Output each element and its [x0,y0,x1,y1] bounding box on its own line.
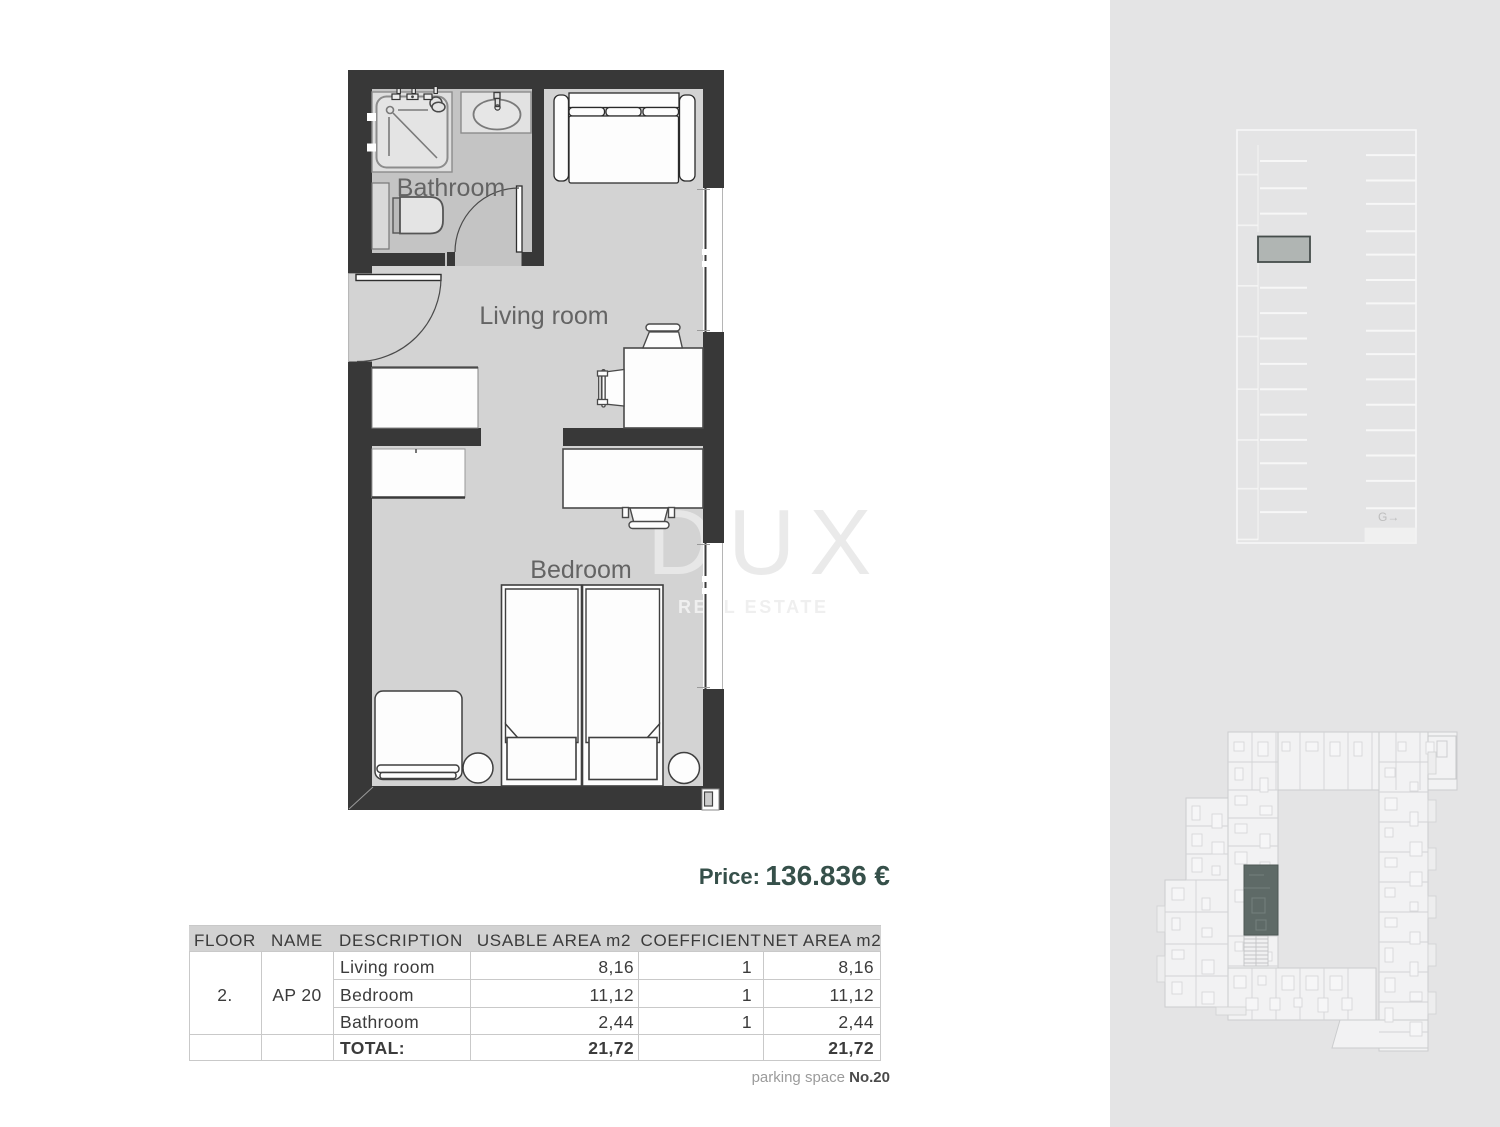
svg-text:REAL ESTATE: REAL ESTATE [678,597,829,617]
svg-text:8,16: 8,16 [838,957,874,977]
svg-text:G→: G→ [1378,510,1399,524]
svg-text:8,16: 8,16 [598,957,634,977]
svg-text:NAME: NAME [271,931,323,950]
svg-text:2,44: 2,44 [838,1012,874,1032]
svg-text:21,72: 21,72 [828,1038,874,1058]
svg-text:USABLE AREA m2: USABLE AREA m2 [477,931,631,950]
svg-text:2,44: 2,44 [598,1012,634,1032]
svg-text:136.836 €: 136.836 € [765,860,890,891]
svg-text:AP 20: AP 20 [272,985,321,1005]
svg-text:DESCRIPTION: DESCRIPTION [339,931,463,950]
svg-text:Bedroom: Bedroom [530,556,631,584]
svg-text:parking space No.20: parking space No.20 [752,1069,890,1086]
svg-text:1: 1 [742,957,752,977]
svg-text:Living room: Living room [340,957,435,977]
svg-text:Living room: Living room [479,302,608,330]
svg-text:1: 1 [742,985,752,1005]
svg-text:11,12: 11,12 [590,985,635,1005]
svg-text:Price:: Price: [699,864,760,889]
svg-text:21,72: 21,72 [588,1038,634,1058]
svg-text:2.: 2. [217,985,232,1005]
svg-text:Bathroom: Bathroom [397,174,505,202]
svg-text:Bedroom: Bedroom [340,985,414,1005]
svg-text:FLOOR: FLOOR [194,931,256,950]
svg-text:Bathroom: Bathroom [340,1012,419,1032]
svg-text:NET AREA m2: NET AREA m2 [763,931,882,950]
svg-text:COEFFICIENT: COEFFICIENT [640,931,761,950]
svg-text:1: 1 [742,1012,752,1032]
svg-text:TOTAL:: TOTAL: [340,1038,405,1058]
svg-text:11,12: 11,12 [830,985,875,1005]
